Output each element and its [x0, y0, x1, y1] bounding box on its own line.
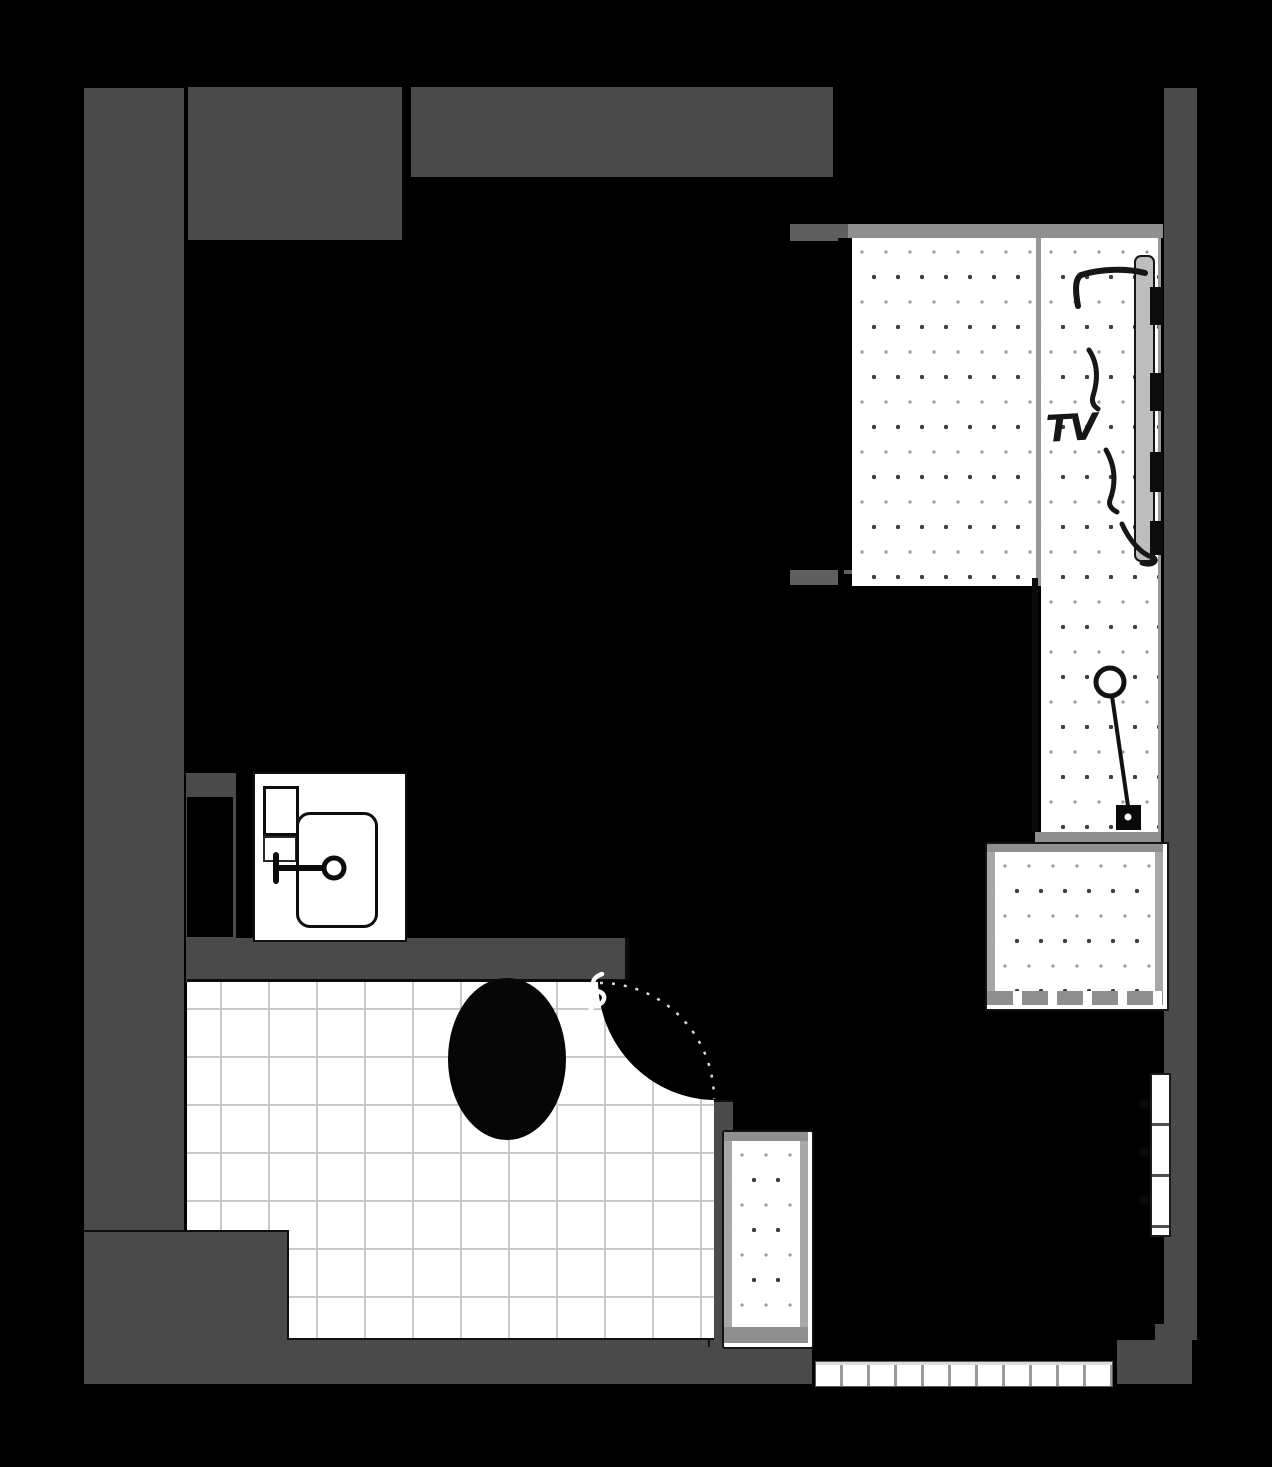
wall-bathroom-top	[187, 938, 629, 982]
radiator-bottom-bar	[724, 1327, 808, 1343]
window-anchor-dot	[1140, 1148, 1148, 1156]
bench-furniture	[985, 842, 1169, 1011]
bench-top-bar	[987, 844, 1163, 852]
bench-cushion	[995, 852, 1155, 991]
bed-headboard-bar	[848, 224, 1163, 238]
bed-left-dashed-edge	[838, 238, 852, 586]
radiator-right-strip	[800, 1141, 808, 1327]
wall-top	[411, 87, 833, 177]
radiator-top-bar	[724, 1132, 808, 1141]
window-anchor-dot	[1140, 1100, 1148, 1108]
bench-bottom-dashes	[987, 991, 1163, 1005]
carpet-strip-left-border	[1032, 578, 1038, 832]
window-right	[1150, 1073, 1171, 1237]
wall-bottom	[84, 1338, 812, 1384]
wall-bottom-right	[1117, 1340, 1192, 1384]
toilet-bowl	[448, 978, 566, 1140]
tv-mount-dash	[1150, 452, 1163, 492]
bed-area	[852, 238, 1036, 586]
vanity-shelf-upper	[263, 786, 299, 836]
tv-mount-dash	[1150, 287, 1163, 325]
carpet-strip-bottom-bar	[1035, 832, 1161, 842]
vanity-shelf-lower	[263, 836, 297, 862]
bed-strip-divider	[1036, 238, 1041, 586]
wall-top-left-block	[188, 87, 402, 240]
wall-foot-overlay	[84, 1230, 289, 1340]
bench-left-strip	[987, 852, 995, 999]
window-bottom	[815, 1361, 1113, 1387]
floor-plan-canvas: TV	[0, 0, 1272, 1467]
tv-label: TV	[1045, 404, 1117, 456]
sink-basin	[296, 812, 378, 928]
closet-niche	[187, 797, 233, 937]
tv-mount-dash	[1150, 521, 1163, 555]
radiator-left-strip	[724, 1141, 732, 1327]
tv-mount-dash	[1150, 373, 1163, 411]
window-anchor-dot	[1140, 1196, 1148, 1204]
radiator	[722, 1130, 814, 1349]
wall-left	[84, 88, 184, 1230]
wall-bed-foot-bar-a	[790, 570, 838, 585]
wall-bottom-right-step	[1155, 1324, 1192, 1340]
radiator-core	[732, 1141, 800, 1327]
bench-right-strip	[1155, 852, 1163, 999]
